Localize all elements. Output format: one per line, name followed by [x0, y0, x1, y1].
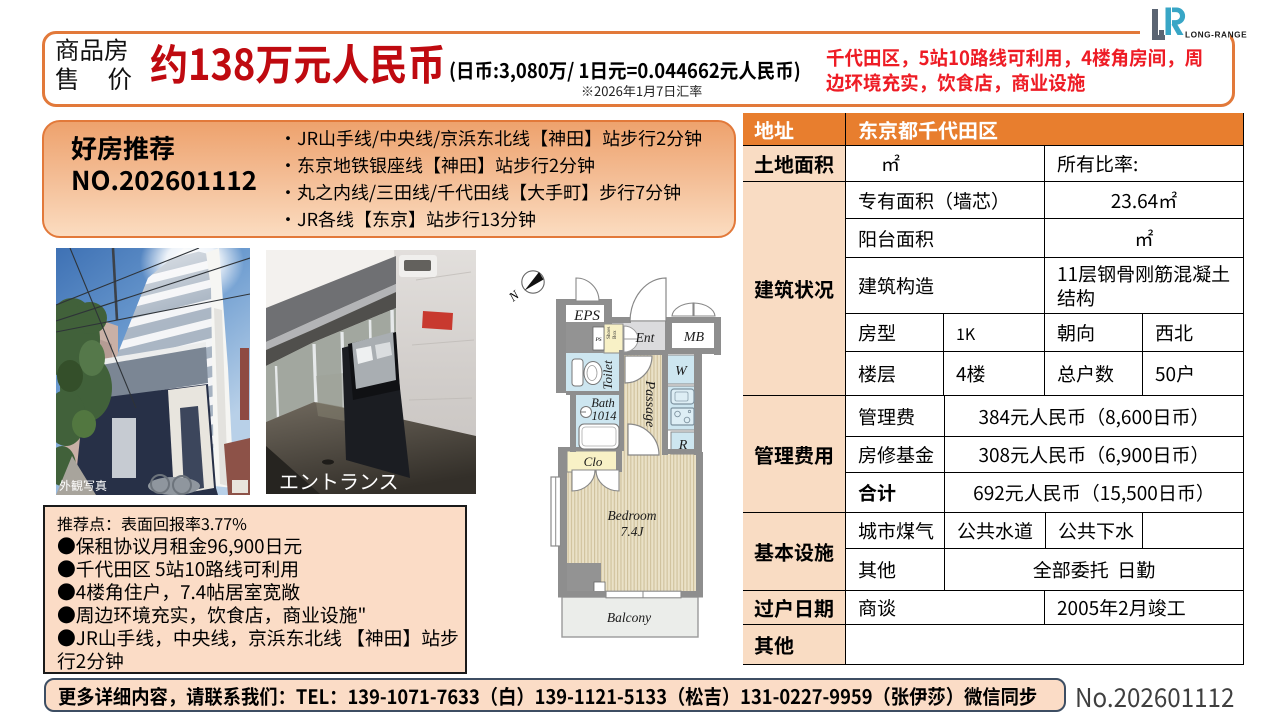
svg-text:Clo: Clo: [584, 454, 603, 469]
svg-text:Ent: Ent: [635, 330, 656, 345]
svg-text:外観写真: 外観写真: [59, 477, 107, 494]
svg-text:EPS: EPS: [573, 308, 600, 324]
svg-text:1014: 1014: [592, 409, 617, 423]
svg-text:R: R: [678, 438, 688, 453]
svg-text:W: W: [675, 364, 688, 379]
svg-text:LONG-RANGE: LONG-RANGE: [1185, 30, 1247, 40]
svg-text:Passage: Passage: [642, 380, 657, 428]
svg-text:Balcony: Balcony: [607, 610, 651, 625]
svg-text:7.4J: 7.4J: [621, 524, 645, 539]
svg-text:エントランス: エントランス: [279, 466, 399, 494]
svg-text:Bedroom: Bedroom: [608, 508, 657, 523]
svg-text:Toilet: Toilet: [600, 360, 615, 390]
svg-text:MB: MB: [683, 330, 705, 345]
svg-text:PS: PS: [594, 337, 601, 343]
svg-text:Bath: Bath: [591, 396, 615, 410]
svg-text:N: N: [505, 286, 523, 305]
svg-text:Box: Box: [612, 330, 618, 339]
